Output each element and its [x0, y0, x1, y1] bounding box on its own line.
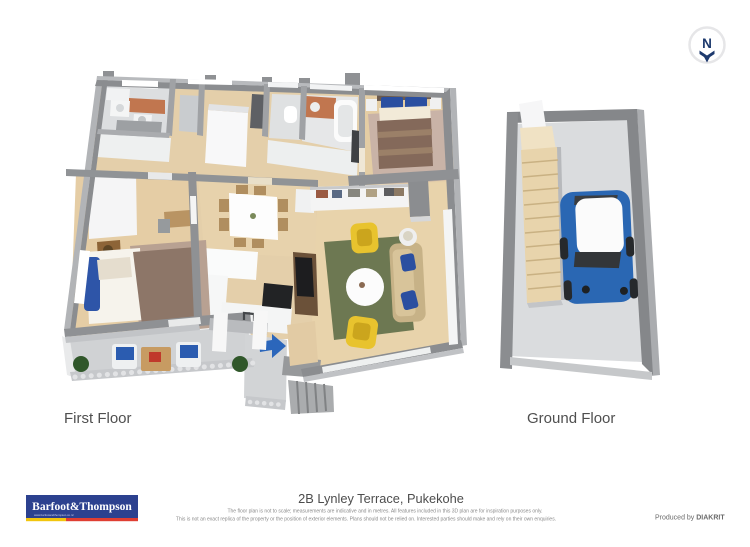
svg-text:First Floor: First Floor [64, 410, 132, 427]
svg-text:N: N [702, 36, 712, 51]
svg-text:Produced by DIAKRIT: Produced by DIAKRIT [655, 515, 725, 522]
svg-text:The floor plan is not to scale: The floor plan is not to scale; measurem… [227, 509, 542, 515]
svg-text:www.barfootandthompson.co.nz: www.barfootandthompson.co.nz [34, 513, 74, 517]
svg-text:Barfoot&Thompson: Barfoot&Thompson [32, 501, 132, 513]
svg-text:2B Lynley Terrace, Pukekohe: 2B Lynley Terrace, Pukekohe [298, 491, 464, 506]
svg-text:Ground Floor: Ground Floor [527, 410, 615, 427]
svg-text:This is not an exact replica o: This is not an exact replica of the prop… [176, 517, 556, 523]
